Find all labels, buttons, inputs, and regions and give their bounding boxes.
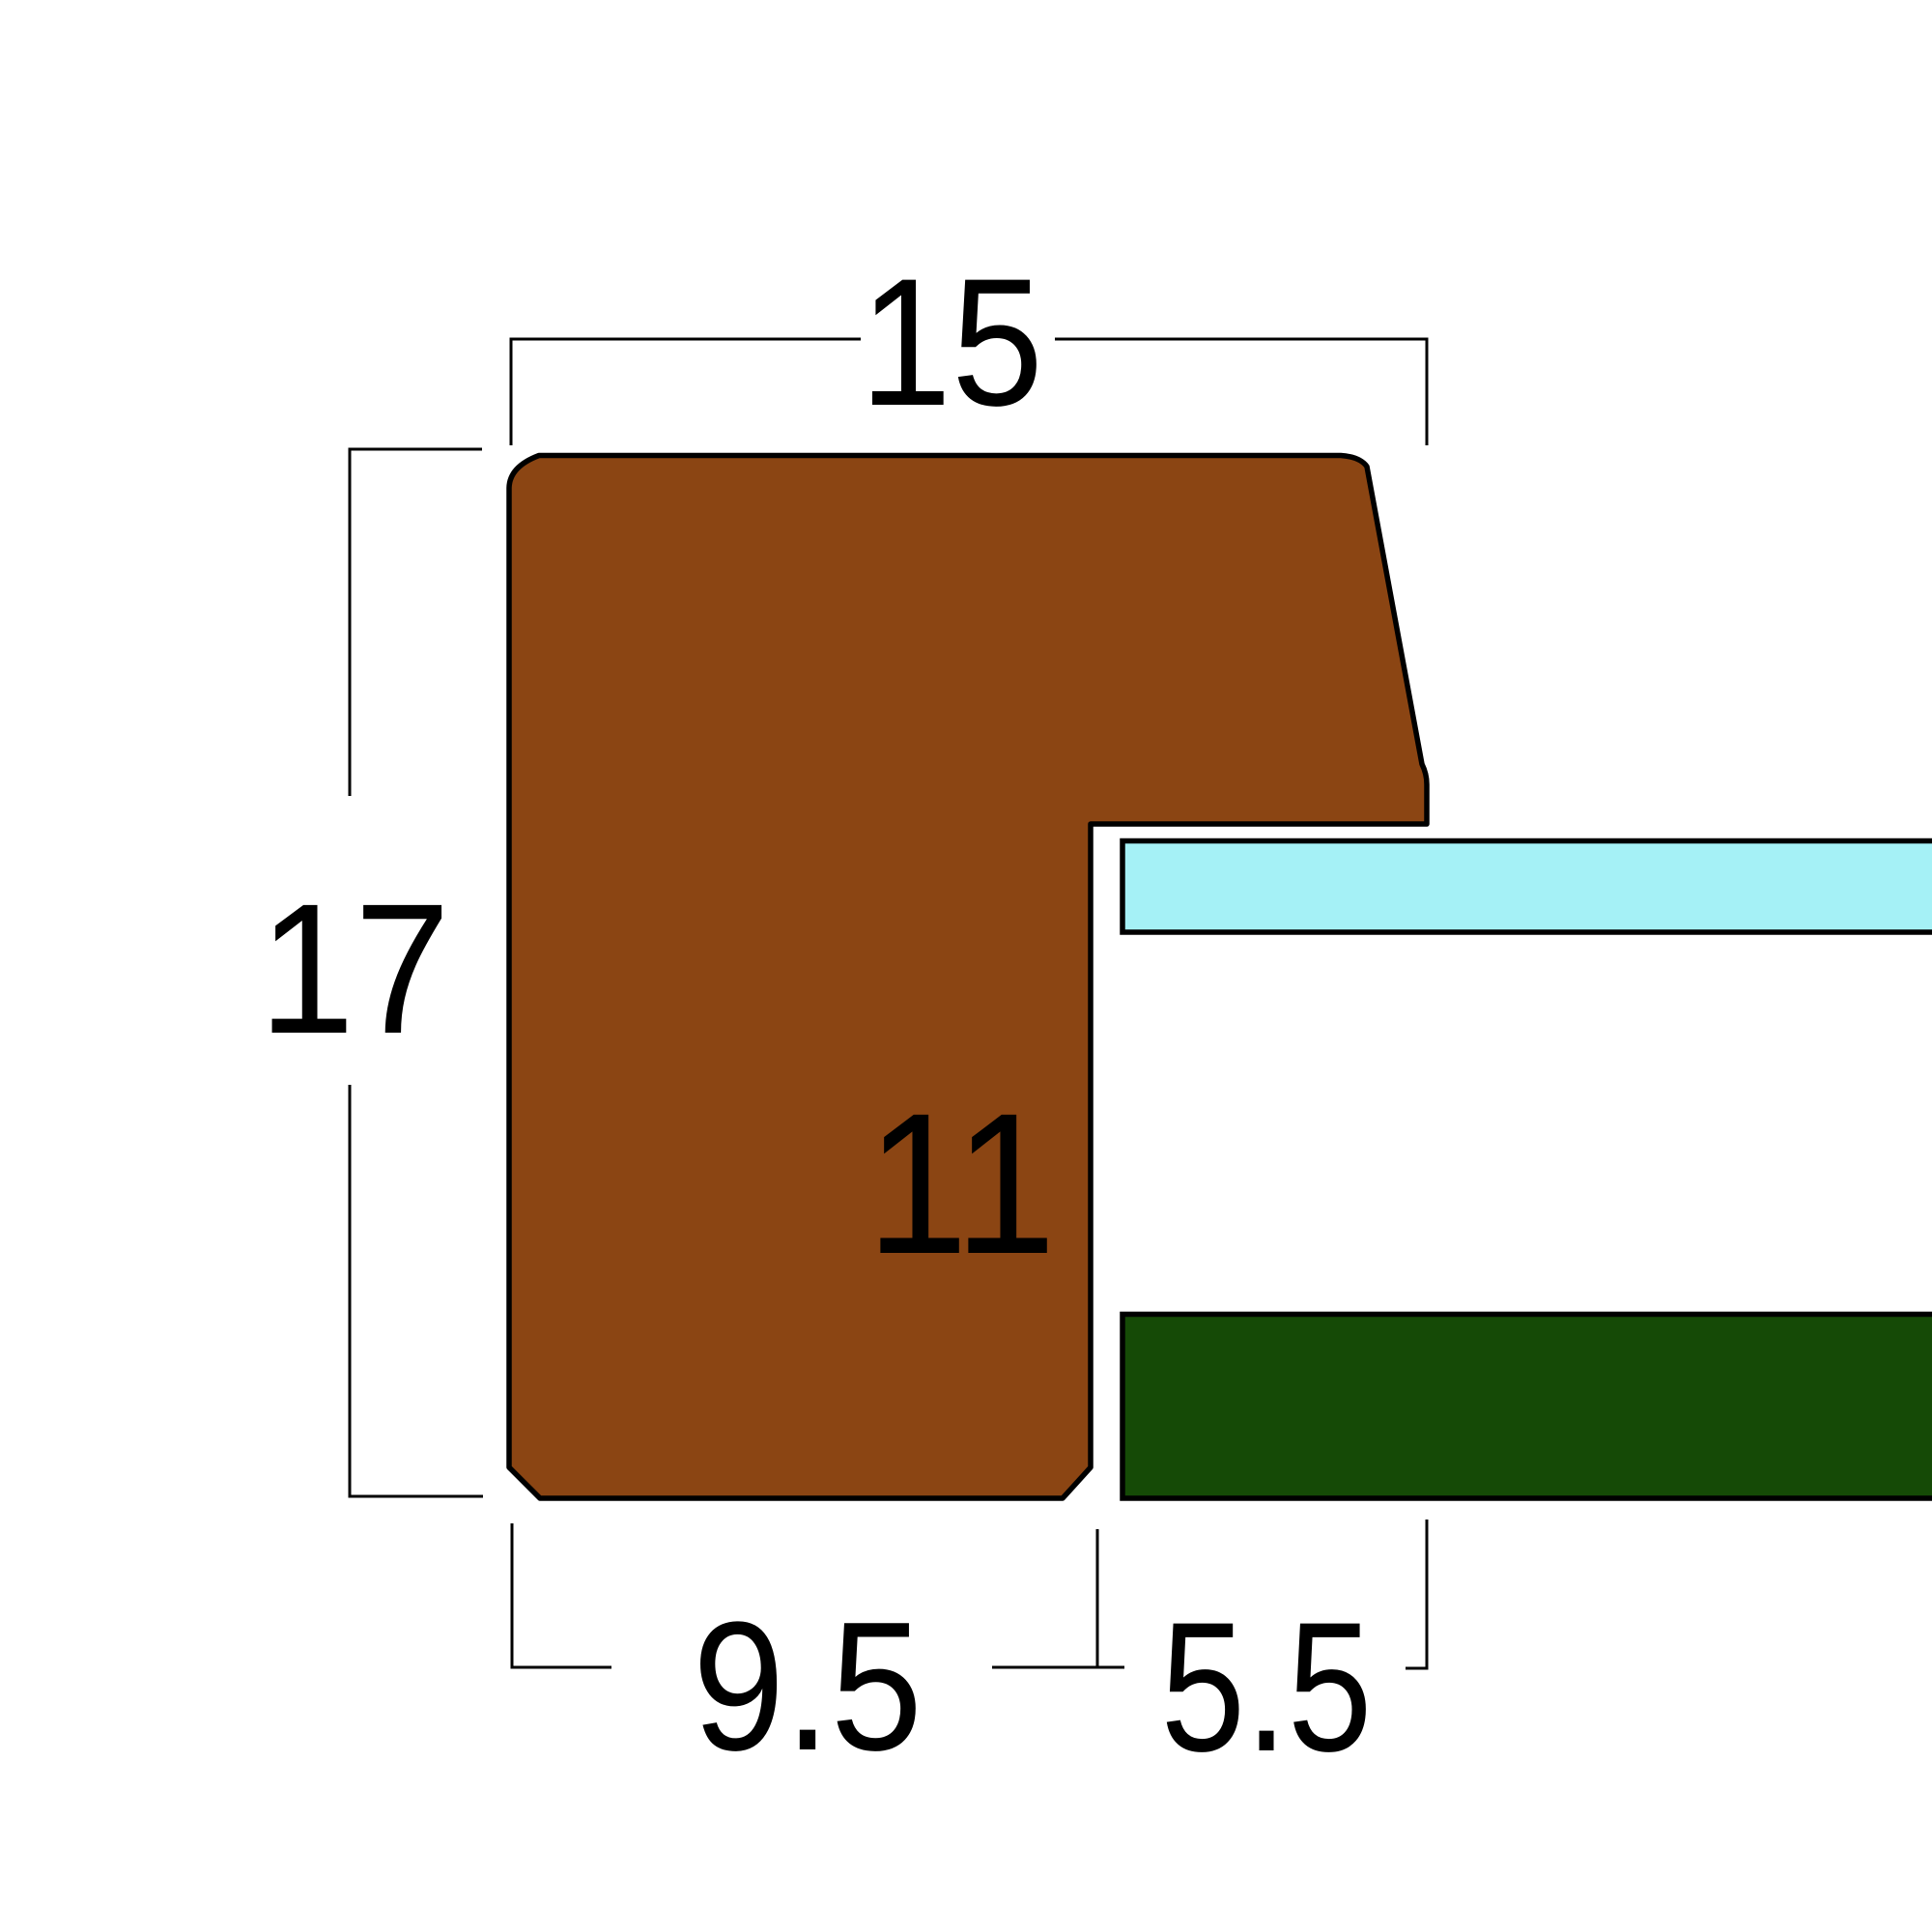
svg-text:9.5: 9.5 xyxy=(693,1584,923,1789)
svg-text:15: 15 xyxy=(860,241,1043,443)
svg-text:11: 11 xyxy=(867,1072,1056,1296)
svg-text:17: 17 xyxy=(259,865,450,1072)
svg-text:5.5: 5.5 xyxy=(1161,1584,1373,1790)
